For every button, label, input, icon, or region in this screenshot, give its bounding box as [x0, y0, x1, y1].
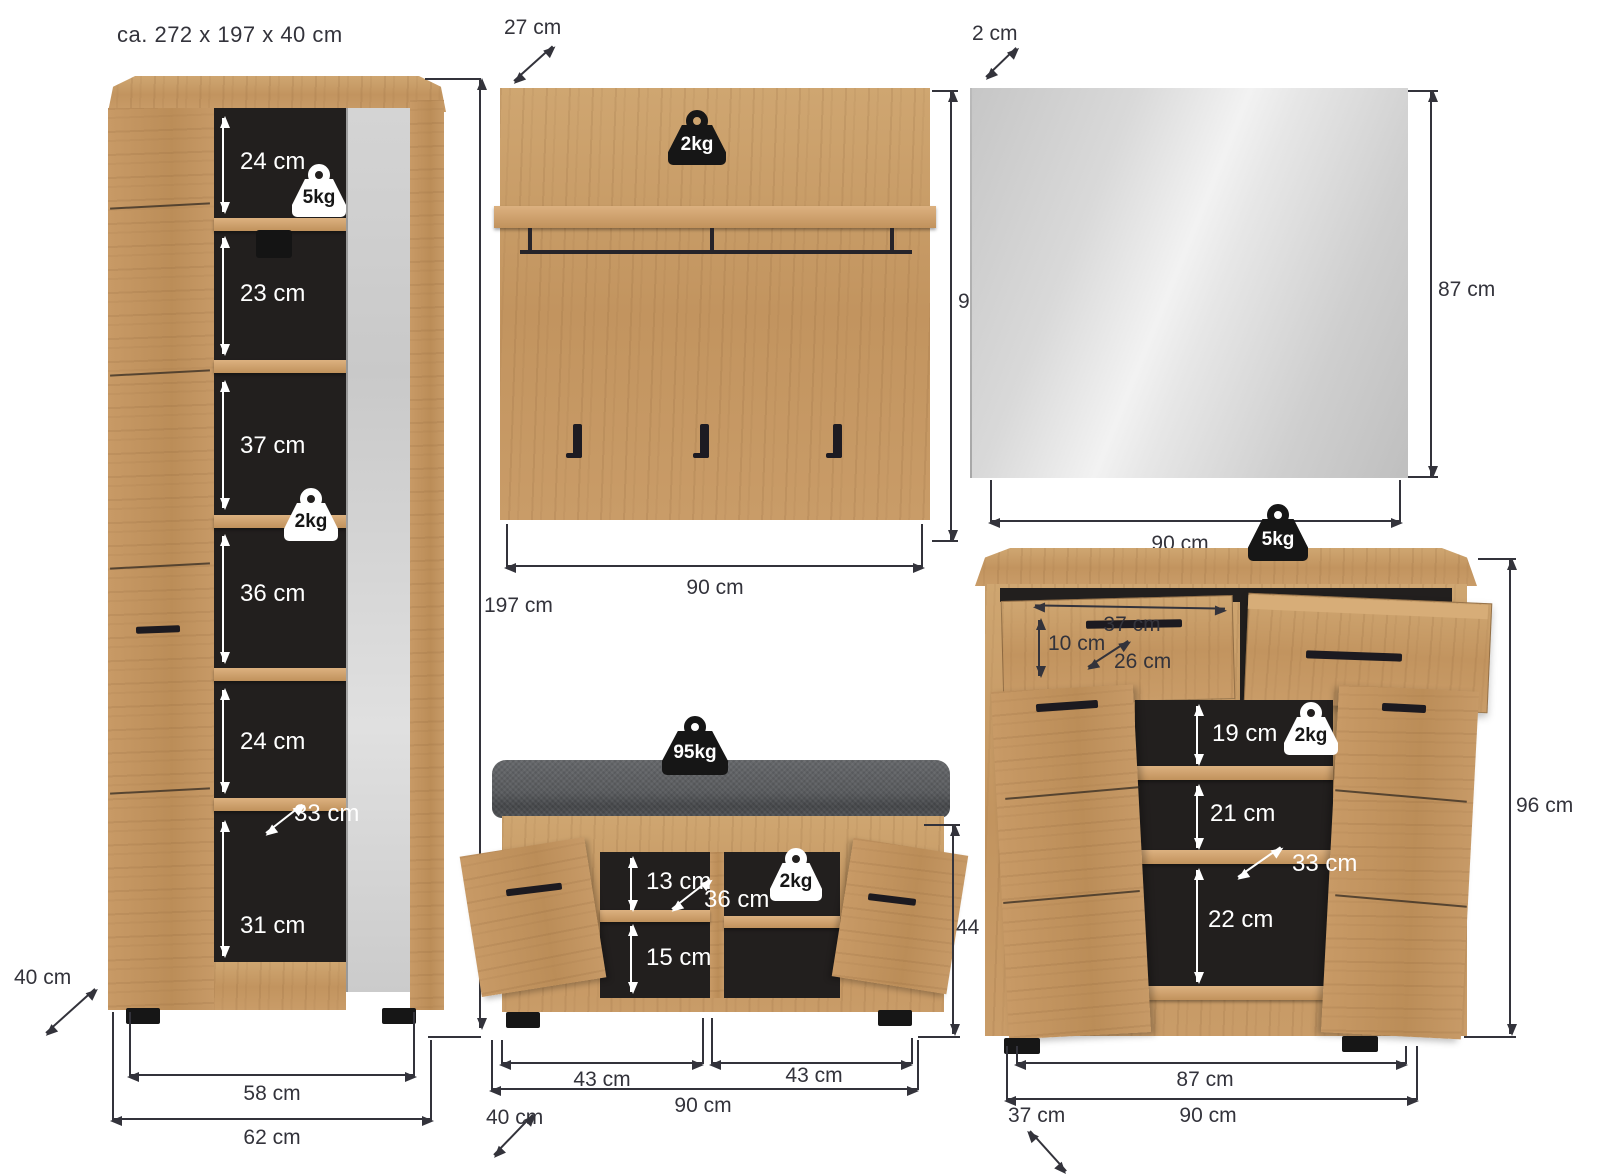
chest-shelf2-label: 21 cm	[1210, 800, 1275, 828]
dim-arrow	[222, 382, 224, 508]
wardrobe-top	[108, 76, 446, 112]
wardrobe-shelf-dim: 31 cm	[240, 912, 305, 940]
coat-rail-support	[890, 228, 894, 254]
chest-feet-span-label: 87 cm	[1176, 1068, 1233, 1092]
chest-foot	[1004, 1038, 1040, 1054]
dim-arrow	[1006, 1098, 1417, 1100]
dim-arrow	[630, 926, 632, 992]
dim-arrow	[222, 690, 224, 792]
dim-arrow	[129, 1074, 415, 1076]
chest-width-label: 90 cm	[1179, 1104, 1236, 1128]
dim-arrow-diagonal	[1029, 1130, 1067, 1171]
chest-shelf-board	[1135, 766, 1333, 780]
dim-arrow	[491, 1088, 917, 1090]
wardrobe-foot	[126, 1008, 160, 1024]
extension-line	[129, 1012, 131, 1076]
panel-width-label: 90 cm	[686, 576, 743, 600]
extension-line	[711, 1018, 713, 1064]
page-title: ca. 272 x 197 x 40 cm	[117, 22, 343, 48]
weight-value: 95kg	[662, 731, 728, 775]
bench-inner-depth: 36 cm	[704, 886, 769, 914]
weight-icon: 95kg	[662, 716, 728, 775]
coat-rail-support	[528, 228, 532, 254]
dim-arrow	[112, 1118, 432, 1120]
extension-line	[702, 1018, 704, 1064]
coat-rail-support	[710, 228, 714, 254]
dim-arrow	[1430, 92, 1432, 476]
coat-hook	[833, 424, 842, 458]
extension-line	[1464, 1036, 1516, 1038]
chest-foot	[1342, 1036, 1378, 1052]
extension-line	[1408, 476, 1438, 478]
wardrobe-mirror-door	[346, 108, 412, 992]
wardrobe-shelf-dim: 23 cm	[240, 280, 305, 308]
wardrobe-shelf-dim: 37 cm	[240, 432, 305, 460]
dim-arrow-diagonal	[45, 988, 95, 1034]
dim-arrow	[222, 822, 224, 956]
bench-shelf-board	[600, 910, 710, 922]
extension-line	[1416, 1046, 1418, 1100]
dim-arrow	[1016, 1062, 1406, 1064]
wardrobe-width-label: 62 cm	[243, 1126, 300, 1150]
coat-hook	[573, 424, 582, 458]
dim-arrow-diagonal	[985, 47, 1017, 78]
extension-line	[921, 524, 923, 567]
extension-line	[425, 78, 481, 80]
dim-arrow-diagonal	[513, 45, 553, 81]
dim-arrow	[222, 238, 224, 354]
extension-line	[918, 1036, 960, 1038]
bench-foot	[506, 1012, 540, 1028]
dim-arrow	[990, 520, 1401, 522]
extension-line	[430, 1040, 432, 1120]
mirror-height-label: 87 cm	[1438, 278, 1495, 302]
extension-line	[990, 480, 992, 522]
dim-arrow	[1196, 870, 1198, 982]
wardrobe-feet-span-label: 58 cm	[243, 1082, 300, 1106]
weight-value: 5kg	[292, 179, 346, 217]
coat-rail	[520, 250, 912, 254]
bench-lower-dim: 15 cm	[646, 944, 711, 972]
dim-arrow	[1038, 620, 1040, 676]
chest-top	[975, 548, 1477, 586]
extension-line	[1006, 1046, 1008, 1100]
panel-depth-label: 27 cm	[504, 16, 561, 40]
wardrobe-shelf-dim: 24 cm	[240, 728, 305, 756]
bench-right-door	[832, 838, 968, 994]
weight-icon: 5kg	[292, 164, 346, 217]
dim-arrow	[222, 118, 224, 212]
extension-line	[413, 1012, 415, 1076]
chest-height-label: 96 cm	[1516, 794, 1573, 818]
dim-arrow	[952, 826, 954, 1034]
bench-width-label: 90 cm	[674, 1094, 731, 1118]
dim-arrow	[501, 1062, 702, 1064]
weight-value: 2kg	[1284, 717, 1338, 755]
wardrobe-height-label: 197 cm	[484, 594, 553, 618]
mirror-depth-label: 2 cm	[972, 22, 1018, 46]
fold-hook-hardware	[256, 230, 292, 258]
chest-drawer-depth-label: 26 cm	[1114, 650, 1171, 674]
bench-divider	[710, 852, 724, 998]
chest-left-door	[991, 685, 1151, 1040]
chest-shelf3-label: 22 cm	[1208, 906, 1273, 934]
chest-drawer-width-label: 37 cm	[1103, 613, 1160, 637]
extension-line	[491, 1040, 493, 1090]
extension-line	[917, 1040, 919, 1090]
weight-value: 2kg	[284, 503, 338, 541]
weight-value: 2kg	[770, 863, 822, 901]
bench-left-door	[460, 837, 607, 997]
chest-shelf-board	[1135, 986, 1333, 1000]
bench-shelf-board	[724, 916, 840, 928]
wardrobe-inner-depth: 33 cm	[294, 800, 359, 828]
dim-arrow	[1509, 560, 1511, 1034]
weight-icon: 2kg	[1284, 702, 1338, 755]
chest-shelf1-label: 19 cm	[1212, 720, 1277, 748]
mirror-body	[970, 88, 1408, 478]
bench-foot	[878, 1010, 912, 1026]
extension-line	[932, 540, 958, 542]
dim-arrow	[1196, 786, 1198, 848]
coat-hook	[700, 424, 709, 458]
weight-icon: 2kg	[770, 848, 822, 901]
dim-arrow	[222, 536, 224, 662]
extension-line	[428, 1036, 481, 1038]
weight-icon: 2kg	[284, 488, 338, 541]
extension-line	[506, 524, 508, 567]
weight-value: 5kg	[1248, 519, 1308, 561]
wardrobe-depth-label: 40 cm	[14, 966, 71, 990]
chest-inner-depth-label: 33 cm	[1292, 850, 1357, 878]
wardrobe-shelf-board	[214, 668, 346, 681]
weight-value: 2kg	[668, 125, 726, 165]
wardrobe-foot	[382, 1008, 416, 1024]
bench-right-door-label: 43 cm	[785, 1064, 842, 1088]
dim-arrow	[1196, 706, 1198, 764]
wardrobe-plinth	[214, 962, 346, 1010]
extension-line	[112, 1012, 114, 1120]
extension-line	[1399, 480, 1401, 522]
dim-arrow	[506, 565, 923, 567]
weight-icon: 2kg	[668, 110, 726, 165]
weight-icon: 5kg	[1248, 504, 1308, 561]
chest-depth-label: 37 cm	[1008, 1104, 1065, 1128]
dim-arrow	[950, 92, 952, 540]
panel-shelf	[494, 206, 936, 228]
furniture-dimension-diagram: ca. 272 x 197 x 40 cm 5kg 2kg 24 cm	[0, 0, 1600, 1174]
chest-drawer-height-label: 10 cm	[1048, 632, 1105, 656]
wardrobe-shelf-dim: 36 cm	[240, 580, 305, 608]
wardrobe-shelf-board	[214, 360, 346, 373]
wardrobe-right-frame	[410, 100, 444, 1010]
wardrobe-left-door	[108, 108, 216, 1010]
dim-arrow	[630, 858, 632, 910]
